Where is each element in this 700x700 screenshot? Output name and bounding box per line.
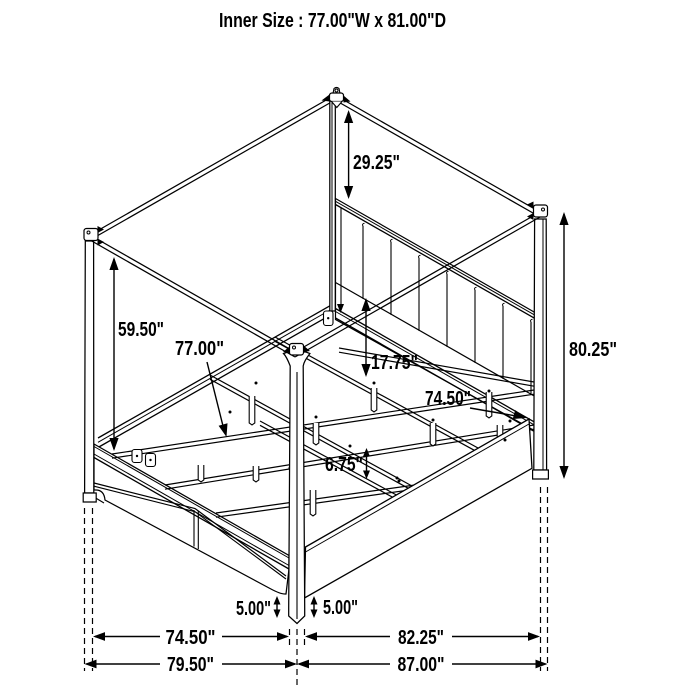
svg-text:74.50": 74.50" xyxy=(425,388,471,410)
svg-text:6.75": 6.75" xyxy=(325,454,363,476)
svg-text:74.50": 74.50" xyxy=(166,627,216,649)
svg-text:79.50": 79.50" xyxy=(167,654,214,676)
svg-text:80.25": 80.25" xyxy=(569,339,617,361)
svg-text:5.00": 5.00" xyxy=(323,597,358,619)
svg-text:5.00": 5.00" xyxy=(236,598,271,620)
svg-text:77.00": 77.00" xyxy=(175,338,224,360)
svg-text:82.25": 82.25" xyxy=(398,627,444,649)
svg-text:17.75": 17.75" xyxy=(371,352,418,374)
svg-text:Inner Size : 77.00"W x 81.00"D: Inner Size : 77.00"W x 81.00"D xyxy=(219,10,446,32)
svg-text:59.50": 59.50" xyxy=(118,319,164,341)
svg-text:87.00": 87.00" xyxy=(398,654,445,676)
svg-text:29.25": 29.25" xyxy=(353,152,400,174)
